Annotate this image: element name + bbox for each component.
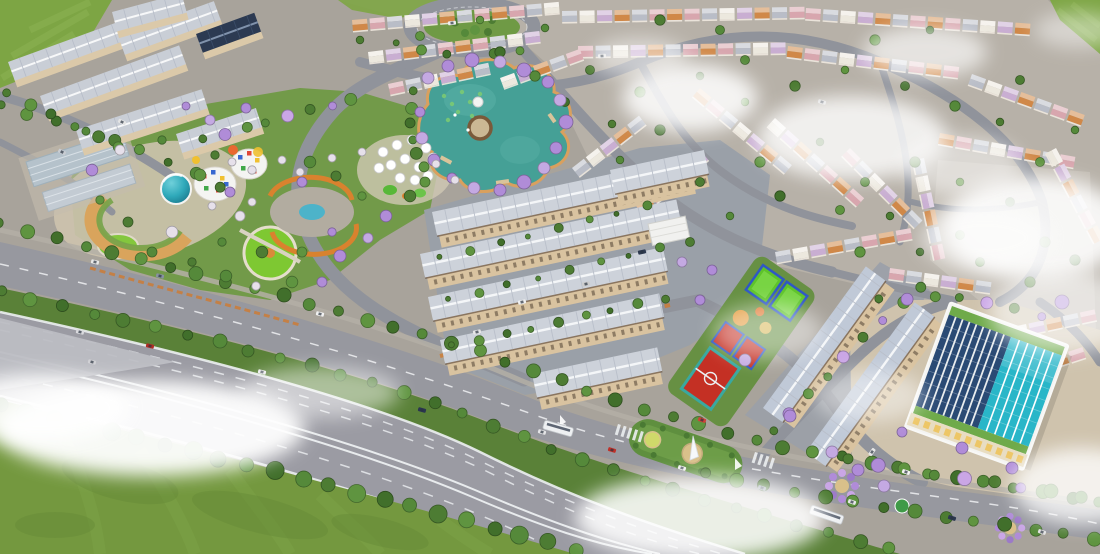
tree bbox=[770, 427, 778, 435]
tree bbox=[1036, 158, 1045, 167]
tree bbox=[755, 157, 765, 167]
villa-wall bbox=[720, 19, 735, 21]
villa-house bbox=[790, 12, 805, 18]
villa-house bbox=[737, 8, 752, 13]
tree bbox=[304, 156, 316, 168]
tree bbox=[297, 177, 307, 187]
tree bbox=[387, 321, 399, 333]
color-panel bbox=[238, 155, 243, 160]
tree bbox=[806, 446, 818, 458]
tree bbox=[218, 238, 226, 246]
tree bbox=[21, 225, 35, 239]
tree bbox=[494, 56, 506, 68]
villa-house bbox=[702, 8, 717, 13]
lake-pavilion bbox=[473, 97, 483, 107]
tree bbox=[696, 178, 705, 187]
tree bbox=[916, 248, 924, 256]
villa-wall bbox=[632, 21, 647, 23]
tree bbox=[528, 326, 534, 332]
tree bbox=[488, 522, 502, 536]
villa-wall bbox=[771, 53, 786, 55]
tree bbox=[879, 317, 887, 325]
tree bbox=[989, 476, 1001, 488]
lily-pad bbox=[442, 94, 446, 98]
tree bbox=[334, 250, 346, 262]
villa-wall bbox=[702, 19, 717, 21]
tree bbox=[878, 480, 890, 492]
tree bbox=[916, 282, 926, 292]
tree bbox=[228, 158, 236, 166]
tree bbox=[575, 453, 589, 467]
tree bbox=[554, 94, 566, 106]
tree bbox=[536, 276, 541, 281]
tree bbox=[517, 63, 531, 77]
tree bbox=[1016, 76, 1025, 85]
tree bbox=[208, 202, 216, 210]
ring-plaza-pond bbox=[299, 204, 325, 220]
tree bbox=[415, 107, 425, 117]
tree bbox=[819, 490, 833, 504]
tree bbox=[475, 289, 484, 298]
tree bbox=[134, 145, 144, 155]
tree bbox=[498, 239, 505, 246]
tree bbox=[836, 206, 845, 215]
tree bbox=[901, 82, 910, 91]
tree bbox=[686, 238, 695, 247]
tree bbox=[409, 87, 417, 95]
tree bbox=[266, 461, 284, 479]
tree bbox=[71, 123, 79, 131]
cloud bbox=[592, 38, 688, 78]
tree bbox=[219, 129, 231, 141]
villa-house bbox=[910, 15, 925, 21]
green-umbrella bbox=[895, 499, 909, 513]
white-umbrella bbox=[395, 173, 405, 183]
villa-house bbox=[718, 43, 733, 48]
tree bbox=[3, 89, 11, 97]
villa-house bbox=[562, 11, 577, 16]
villa-house bbox=[719, 8, 734, 13]
tree bbox=[886, 212, 894, 220]
villa-house bbox=[753, 48, 768, 54]
villa-house bbox=[980, 25, 995, 32]
tree bbox=[215, 182, 225, 192]
villa-house bbox=[997, 26, 1012, 33]
villa-house bbox=[580, 15, 595, 21]
villa-house bbox=[875, 13, 890, 19]
villa-house bbox=[998, 21, 1013, 27]
tree bbox=[275, 353, 285, 363]
villa-house bbox=[772, 12, 787, 18]
white-umbrella bbox=[374, 163, 384, 173]
tree bbox=[437, 254, 442, 259]
tree bbox=[790, 81, 800, 91]
lily-pad bbox=[470, 114, 474, 118]
lake-island bbox=[469, 117, 491, 139]
tree bbox=[363, 233, 373, 243]
tree bbox=[871, 458, 885, 472]
tree bbox=[328, 228, 336, 236]
tree bbox=[205, 115, 215, 125]
tree bbox=[90, 309, 100, 319]
tree bbox=[442, 60, 454, 72]
cloud bbox=[240, 366, 400, 418]
villa-house bbox=[1015, 23, 1030, 29]
orange-roof-dot bbox=[228, 145, 238, 155]
tree bbox=[930, 292, 940, 302]
yellow-roof-dot-2 bbox=[192, 156, 200, 164]
tree bbox=[56, 300, 68, 312]
tree bbox=[422, 72, 434, 84]
tree bbox=[503, 281, 510, 288]
tree bbox=[608, 393, 622, 407]
tree bbox=[123, 217, 133, 227]
tree bbox=[550, 142, 562, 154]
color-panel bbox=[204, 186, 209, 191]
tree bbox=[656, 243, 665, 252]
tree bbox=[448, 342, 454, 348]
villa-house bbox=[597, 10, 612, 15]
villa-wall bbox=[562, 22, 577, 24]
tree bbox=[998, 517, 1012, 531]
villa-house bbox=[702, 13, 717, 19]
cloud bbox=[713, 304, 823, 360]
tree bbox=[559, 115, 573, 129]
tree bbox=[443, 50, 451, 58]
tree bbox=[183, 330, 193, 340]
villa-house bbox=[893, 14, 908, 20]
tree bbox=[409, 136, 417, 144]
lily-pad bbox=[446, 118, 450, 122]
villa-house bbox=[614, 10, 629, 15]
villa-house bbox=[718, 48, 733, 54]
tree bbox=[722, 427, 734, 439]
tree bbox=[158, 136, 166, 144]
tree bbox=[500, 357, 510, 367]
tree bbox=[105, 246, 119, 260]
tree bbox=[242, 345, 254, 357]
tree bbox=[662, 295, 670, 303]
tree bbox=[626, 253, 631, 258]
tree bbox=[1006, 462, 1018, 474]
tree bbox=[416, 45, 426, 55]
tree bbox=[858, 332, 868, 342]
tree bbox=[803, 389, 813, 399]
tree bbox=[996, 118, 1004, 126]
white-umbrella bbox=[400, 154, 410, 164]
tree bbox=[23, 293, 37, 307]
tree bbox=[586, 66, 595, 75]
villa-wall bbox=[701, 55, 716, 57]
villa-house bbox=[770, 42, 785, 47]
tree bbox=[333, 306, 343, 316]
tree bbox=[296, 471, 312, 487]
villa-house bbox=[735, 43, 750, 48]
tree bbox=[305, 104, 315, 114]
tree bbox=[405, 118, 415, 128]
villa-house bbox=[700, 44, 715, 49]
villa-house bbox=[685, 14, 700, 20]
tree bbox=[189, 267, 203, 281]
tree bbox=[554, 317, 564, 327]
villa-house bbox=[771, 47, 786, 53]
tree bbox=[417, 329, 427, 339]
tree bbox=[977, 475, 989, 487]
villa-house bbox=[755, 12, 770, 18]
villa-wall bbox=[737, 19, 752, 21]
tree bbox=[459, 512, 475, 528]
tree bbox=[199, 135, 207, 143]
tree bbox=[784, 410, 796, 422]
lake-shallow-2 bbox=[500, 136, 540, 164]
tree bbox=[655, 15, 665, 25]
tree bbox=[0, 101, 5, 109]
tree bbox=[0, 286, 7, 296]
yellow-roof-dot bbox=[253, 147, 263, 157]
tree bbox=[188, 258, 196, 266]
color-panel bbox=[211, 170, 216, 175]
tree bbox=[476, 16, 484, 24]
tree bbox=[194, 169, 206, 181]
tree bbox=[416, 132, 428, 144]
villa-house bbox=[806, 8, 821, 14]
white-umbrella bbox=[410, 175, 420, 185]
tree bbox=[403, 498, 417, 512]
tree bbox=[242, 122, 252, 132]
tree bbox=[598, 258, 605, 265]
villa-house bbox=[683, 44, 698, 49]
villa-house bbox=[805, 13, 820, 20]
lily-pad bbox=[478, 92, 482, 96]
villa-house bbox=[597, 15, 612, 21]
lily-pad bbox=[450, 102, 454, 106]
villa-wall bbox=[597, 21, 612, 23]
tree bbox=[908, 504, 922, 518]
tree bbox=[380, 210, 392, 222]
tree bbox=[446, 296, 451, 301]
tree bbox=[955, 293, 963, 301]
villa-house bbox=[963, 19, 978, 25]
tree bbox=[282, 110, 294, 122]
tree bbox=[494, 184, 506, 196]
villa-house bbox=[945, 18, 960, 24]
tree bbox=[1071, 126, 1079, 134]
tree bbox=[211, 151, 219, 159]
tree bbox=[540, 533, 556, 549]
tree bbox=[348, 484, 366, 502]
villa-wall bbox=[685, 20, 700, 22]
tree bbox=[516, 47, 524, 55]
tree bbox=[329, 102, 337, 110]
tree bbox=[317, 277, 327, 287]
tree bbox=[823, 527, 833, 537]
villa-house bbox=[875, 18, 890, 25]
tree bbox=[716, 26, 725, 35]
tree bbox=[541, 24, 549, 32]
tree bbox=[875, 295, 883, 303]
tree bbox=[950, 101, 960, 111]
tree bbox=[968, 516, 978, 526]
tree bbox=[182, 102, 190, 110]
tree bbox=[958, 472, 972, 486]
tree bbox=[429, 397, 441, 409]
tree bbox=[93, 131, 105, 143]
tree bbox=[51, 232, 63, 244]
tree bbox=[695, 295, 705, 305]
villa-house bbox=[579, 10, 594, 15]
car-glass bbox=[450, 22, 453, 25]
villa-house bbox=[858, 17, 873, 24]
cloud bbox=[815, 370, 925, 422]
tree bbox=[303, 299, 315, 311]
tree bbox=[518, 430, 530, 442]
tree bbox=[248, 166, 256, 174]
lily-pad bbox=[456, 110, 460, 114]
villa-house bbox=[980, 20, 995, 26]
tree bbox=[321, 478, 335, 492]
tree bbox=[416, 32, 425, 41]
tree bbox=[296, 168, 304, 176]
tree bbox=[517, 175, 531, 189]
villa-wall bbox=[580, 21, 595, 23]
tree bbox=[638, 404, 650, 416]
tree bbox=[358, 192, 366, 200]
tree bbox=[643, 201, 652, 210]
villa-house bbox=[684, 9, 699, 14]
car bbox=[448, 21, 456, 26]
tree bbox=[261, 119, 269, 127]
villa-house bbox=[615, 15, 630, 21]
color-panel bbox=[247, 151, 252, 156]
tree bbox=[166, 226, 178, 238]
tree bbox=[166, 263, 176, 273]
tree bbox=[586, 216, 593, 223]
villa-house bbox=[736, 48, 751, 54]
tree bbox=[855, 247, 865, 257]
villa-house bbox=[562, 16, 577, 22]
tree bbox=[854, 535, 868, 549]
tree bbox=[82, 127, 90, 135]
villa-wall bbox=[753, 54, 768, 56]
villa-house bbox=[632, 10, 647, 15]
villa-house bbox=[841, 10, 856, 16]
tree bbox=[474, 336, 484, 346]
tree bbox=[277, 288, 291, 302]
tree bbox=[328, 154, 336, 162]
tree bbox=[235, 211, 245, 221]
tree bbox=[278, 156, 286, 164]
tree bbox=[213, 334, 227, 348]
tree bbox=[897, 427, 907, 437]
white-umbrella bbox=[386, 160, 396, 170]
tree bbox=[410, 147, 422, 159]
tree bbox=[542, 76, 554, 88]
tree bbox=[256, 246, 268, 258]
tree bbox=[565, 265, 574, 274]
tree bbox=[361, 314, 375, 328]
villa-house bbox=[962, 24, 977, 31]
white-umbrella bbox=[392, 140, 402, 150]
playground-blob bbox=[383, 185, 397, 195]
tree bbox=[286, 276, 298, 288]
villa-house bbox=[667, 9, 682, 14]
villa-house bbox=[928, 17, 943, 23]
tree bbox=[420, 177, 430, 187]
tree bbox=[356, 36, 364, 44]
tree bbox=[525, 234, 530, 239]
tree bbox=[457, 408, 467, 418]
villa-house bbox=[1015, 28, 1030, 35]
villa-house bbox=[737, 13, 752, 19]
tree bbox=[879, 503, 889, 513]
tree bbox=[707, 265, 717, 275]
tree bbox=[556, 374, 568, 386]
villa-house bbox=[720, 13, 735, 19]
tree bbox=[451, 176, 459, 184]
tree bbox=[96, 196, 104, 204]
tree bbox=[510, 526, 528, 544]
villa-house bbox=[667, 14, 682, 20]
villa-wall bbox=[772, 18, 787, 20]
tree bbox=[503, 330, 511, 338]
villa-wall bbox=[615, 21, 630, 23]
tree bbox=[252, 282, 260, 290]
tree bbox=[468, 182, 480, 194]
swan bbox=[466, 128, 469, 131]
tree bbox=[248, 198, 256, 206]
villa-house bbox=[858, 12, 873, 18]
cloud bbox=[902, 136, 1022, 196]
tree bbox=[432, 160, 440, 168]
villa-house bbox=[840, 15, 855, 22]
white-umbrella bbox=[378, 147, 388, 157]
color-panel bbox=[220, 176, 225, 181]
tree bbox=[841, 66, 849, 74]
tree bbox=[377, 491, 393, 507]
tree bbox=[582, 386, 592, 396]
tree bbox=[147, 247, 157, 257]
tree bbox=[331, 171, 341, 181]
tree bbox=[419, 162, 429, 172]
tree bbox=[901, 293, 913, 305]
color-panel bbox=[255, 158, 260, 163]
tree bbox=[135, 253, 147, 265]
tree bbox=[607, 464, 619, 476]
tree bbox=[82, 242, 92, 252]
tree bbox=[164, 158, 172, 166]
tree bbox=[404, 190, 416, 202]
tree bbox=[852, 464, 864, 476]
tree bbox=[741, 56, 750, 65]
white-umbrella bbox=[421, 143, 431, 153]
tree bbox=[582, 311, 590, 319]
villa-house bbox=[823, 9, 838, 15]
villa-house bbox=[789, 7, 804, 12]
tree bbox=[776, 441, 790, 455]
villa-house bbox=[701, 49, 716, 55]
villa-house bbox=[649, 9, 664, 14]
tree bbox=[297, 247, 307, 257]
tree bbox=[546, 445, 556, 455]
tree bbox=[616, 156, 624, 164]
tree bbox=[149, 320, 161, 332]
swan-2 bbox=[453, 113, 456, 116]
villa-house bbox=[772, 7, 787, 12]
tree bbox=[633, 298, 643, 308]
tree bbox=[225, 187, 235, 197]
scene-canvas bbox=[0, 0, 1100, 554]
cloud bbox=[920, 206, 1050, 270]
